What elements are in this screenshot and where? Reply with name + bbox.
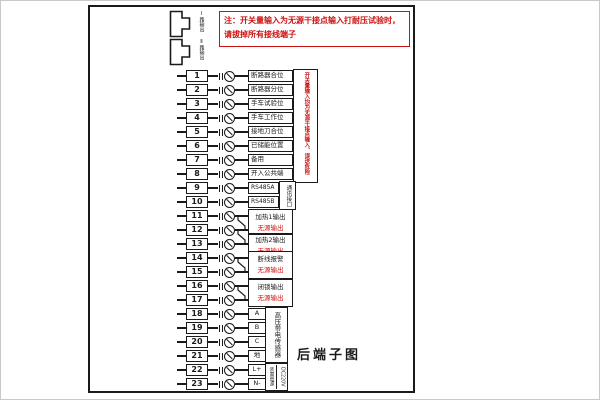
terminal-label-box: A <box>248 308 266 320</box>
plug-tick <box>219 213 221 220</box>
plug-tick <box>222 171 224 178</box>
hv-sensor-label: 高压带电传感器 <box>273 312 280 358</box>
screw-slot <box>226 129 233 136</box>
wire-segment <box>208 257 218 258</box>
plug-tick <box>222 101 224 108</box>
output-group-box: 闭锁输出无源输出 <box>248 279 293 307</box>
device-power-voltage: DC220V <box>279 367 284 386</box>
screw-terminal-icon <box>224 365 235 376</box>
plug-tick <box>219 255 221 262</box>
wire-segment <box>208 131 218 132</box>
plug-tick <box>219 185 221 192</box>
plug-tick <box>222 381 224 388</box>
terminal-number-box: 20 <box>186 336 208 348</box>
device-power-voltage-col: DC220V <box>276 365 287 389</box>
screw-terminal-icon <box>224 169 235 180</box>
wire-segment <box>208 145 218 146</box>
plug-tick <box>219 129 221 136</box>
wire-segment <box>177 369 186 370</box>
rear-terminal-diagram: Ⅰ路输出 Ⅱ路输出 注：开关量输入为无源干接点输入打耐压试验时， 请拔掉所有接线… <box>0 0 600 400</box>
plug-tick <box>219 241 221 248</box>
terminal-number-box: 9 <box>186 182 208 194</box>
wire-segment <box>208 229 218 230</box>
screw-terminal-icon <box>224 141 235 152</box>
screw-terminal-icon <box>224 99 235 110</box>
wire-segment <box>177 285 186 286</box>
terminal-number-box: 16 <box>186 280 208 292</box>
side-warning-box: 开关量输入均为无源干接点输入、误送危险 <box>293 69 318 183</box>
terminal-number-box: 17 <box>186 294 208 306</box>
wire-segment <box>177 89 186 90</box>
screw-terminal-icon <box>224 197 235 208</box>
terminal-number-box: 5 <box>186 126 208 138</box>
screw-slot <box>226 339 233 346</box>
wire-segment <box>208 89 218 90</box>
plug-tick <box>222 129 224 136</box>
terminal-label-box: RS485A <box>248 182 279 194</box>
wire-segment <box>177 299 186 300</box>
wire-segment <box>208 355 218 356</box>
comm-port-bracket: 通讯接口 <box>279 181 296 210</box>
plug-tick <box>222 115 224 122</box>
output-group-type: 无源输出 <box>249 293 292 303</box>
screw-slot <box>226 171 233 178</box>
terminal-number-box: 8 <box>186 168 208 180</box>
diagram-title: 后端子图 <box>297 344 361 363</box>
terminal-number-box: 10 <box>186 196 208 208</box>
wire-segment <box>208 383 218 384</box>
wire-segment <box>208 75 218 76</box>
plug-tick <box>219 283 221 290</box>
output-group-name: 加热2输出 <box>249 235 292 246</box>
plug-tick <box>219 101 221 108</box>
screw-slot <box>226 297 233 304</box>
terminal-number-box: 23 <box>186 378 208 390</box>
screw-slot <box>226 227 233 234</box>
plug-tick <box>222 283 224 290</box>
screw-slot <box>226 199 233 206</box>
wire-segment <box>208 117 218 118</box>
screw-slot <box>226 143 233 150</box>
wire-segment <box>208 159 218 160</box>
plug-tick <box>222 311 224 318</box>
contact-symbol <box>238 216 245 230</box>
side-warning-text: 开关量输入均为无源干接点输入、误送危险 <box>303 72 309 180</box>
wire-segment <box>208 187 218 188</box>
contact-symbol <box>238 258 245 272</box>
comm-port-label: 通讯接口 <box>285 185 291 207</box>
plug-tick <box>219 381 221 388</box>
device-power-label: 装置电源 <box>268 367 273 386</box>
screw-slot <box>226 157 233 164</box>
terminal-label-box: RS485B <box>248 196 279 208</box>
terminal-number-box: 12 <box>186 224 208 236</box>
screw-slot <box>226 255 233 262</box>
terminal-label-box: B <box>248 322 266 334</box>
plug-tick <box>222 73 224 80</box>
terminal-label-box: 手车试验位 <box>248 98 293 110</box>
screw-terminal-icon <box>224 337 235 348</box>
plug-tick <box>219 171 221 178</box>
wire-segment <box>177 341 186 342</box>
screw-slot <box>226 73 233 80</box>
screw-terminal-icon <box>224 309 235 320</box>
plug-tick <box>222 269 224 276</box>
wire-segment <box>177 257 186 258</box>
screw-slot <box>226 325 233 332</box>
plug-tick <box>219 227 221 234</box>
plug-tick <box>222 199 224 206</box>
plug-tick <box>219 297 221 304</box>
plug-tick <box>222 185 224 192</box>
screw-terminal-icon <box>224 113 235 124</box>
screw-slot <box>226 213 233 220</box>
wire-segment <box>208 173 218 174</box>
screw-slot <box>226 381 233 388</box>
device-power-bracket: 装置电源 DC220V <box>265 363 288 391</box>
wire-segment <box>177 383 186 384</box>
wire-segment <box>177 313 186 314</box>
relay-contact-symbols <box>236 1 250 400</box>
screw-slot <box>226 311 233 318</box>
terminal-label-box: 开入公共端 <box>248 168 293 180</box>
wire-segment <box>208 103 218 104</box>
wire-segment <box>177 159 186 160</box>
plug-tick <box>222 325 224 332</box>
output-group-name: 加热1输出 <box>249 212 292 223</box>
terminal-label-box: 地 <box>248 350 266 362</box>
screw-terminal-icon <box>224 267 235 278</box>
hv-sensor-bracket: 高压带电传感器 <box>265 307 288 363</box>
screw-terminal-icon <box>224 71 235 82</box>
plug-tick <box>222 353 224 360</box>
terminal-number-box: 19 <box>186 322 208 334</box>
wire-segment <box>177 131 186 132</box>
terminal-number-box: 1 <box>186 70 208 82</box>
screw-terminal-icon <box>224 225 235 236</box>
terminal-number-box: 6 <box>186 140 208 152</box>
screw-terminal-icon <box>224 253 235 264</box>
wire-segment <box>177 201 186 202</box>
terminal-label-box: 备用 <box>248 154 293 166</box>
screw-terminal-icon <box>224 351 235 362</box>
screw-slot <box>226 367 233 374</box>
plug-tick <box>219 325 221 332</box>
output-group-name: 断线报警 <box>249 254 292 265</box>
wire-segment <box>177 173 186 174</box>
wire-segment <box>177 145 186 146</box>
terminal-label-box: 断路器分位 <box>248 84 293 96</box>
screw-terminal-icon <box>224 323 235 334</box>
wire-segment <box>177 327 186 328</box>
device-power-name-col: 装置电源 <box>266 365 276 389</box>
wire-segment <box>177 355 186 356</box>
plug-tick <box>222 87 224 94</box>
screw-slot <box>226 241 233 248</box>
screw-terminal-icon <box>224 379 235 390</box>
screw-slot <box>226 353 233 360</box>
plug-tick <box>222 255 224 262</box>
terminal-label-box: 手车工作位 <box>248 112 293 124</box>
terminal-number-box: 21 <box>186 350 208 362</box>
screw-terminal-icon <box>224 85 235 96</box>
terminal-number-box: 3 <box>186 98 208 110</box>
terminal-number-box: 2 <box>186 84 208 96</box>
terminal-number-box: 14 <box>186 252 208 264</box>
output-group-name: 闭锁输出 <box>249 282 292 293</box>
wire-segment <box>177 117 186 118</box>
terminal-label-box: L+ <box>248 364 266 376</box>
output-group-box: 加热1输出无源输出 <box>248 209 293 234</box>
terminal-number-box: 7 <box>186 154 208 166</box>
wire-segment <box>177 103 186 104</box>
terminal-label-box: N- <box>248 378 266 390</box>
wire-segment <box>208 327 218 328</box>
contact-symbol <box>238 286 245 300</box>
screw-slot <box>226 87 233 94</box>
terminal-label-box: 已储能位置 <box>248 140 293 152</box>
screw-terminal-icon <box>224 127 235 138</box>
plug-tick <box>222 367 224 374</box>
wire-segment <box>177 187 186 188</box>
wire-segment <box>208 201 218 202</box>
wire-segment <box>208 341 218 342</box>
terminal-label-box: 断路器合位 <box>248 70 293 82</box>
plug-tick <box>222 213 224 220</box>
terminal-number-box: 15 <box>186 266 208 278</box>
screw-terminal-icon <box>224 211 235 222</box>
screw-terminal-icon <box>224 155 235 166</box>
plug-tick <box>219 367 221 374</box>
plug-tick <box>222 241 224 248</box>
wire-segment <box>208 369 218 370</box>
screw-slot <box>226 101 233 108</box>
plug-tick <box>219 87 221 94</box>
screw-terminal-icon <box>224 281 235 292</box>
terminal-number-box: 13 <box>186 238 208 250</box>
terminal-label-box: C <box>248 336 266 348</box>
terminal-number-box: 22 <box>186 364 208 376</box>
plug-tick <box>219 143 221 150</box>
output-group-box: 断线报警无源输出 <box>248 251 293 279</box>
screw-terminal-icon <box>224 295 235 306</box>
plug-tick <box>219 199 221 206</box>
plug-tick <box>222 339 224 346</box>
output-group-type: 无源输出 <box>249 223 292 233</box>
plug-tick <box>222 157 224 164</box>
plug-tick <box>219 157 221 164</box>
screw-slot <box>226 269 233 276</box>
contact-symbol <box>238 230 245 244</box>
screw-terminal-icon <box>224 183 235 194</box>
terminal-strip: 1断路器合位2断路器分位3手车试验位4手车工作位5接地刀合位6已储能位置7备用8… <box>1 1 600 400</box>
wire-segment <box>208 215 218 216</box>
wire-segment <box>177 271 186 272</box>
wire-segment <box>177 75 186 76</box>
wire-segment <box>177 229 186 230</box>
plug-tick <box>219 269 221 276</box>
plug-tick <box>222 297 224 304</box>
screw-slot <box>226 185 233 192</box>
output-group-type: 无源输出 <box>249 265 292 275</box>
terminal-label-box: 接地刀合位 <box>248 126 293 138</box>
terminal-number-box: 4 <box>186 112 208 124</box>
plug-tick <box>222 143 224 150</box>
wire-segment <box>208 313 218 314</box>
plug-tick <box>222 227 224 234</box>
wire-segment <box>208 285 218 286</box>
plug-tick <box>219 73 221 80</box>
wire-segment <box>208 243 218 244</box>
terminal-number-box: 18 <box>186 308 208 320</box>
plug-tick <box>219 353 221 360</box>
screw-slot <box>226 283 233 290</box>
screw-terminal-icon <box>224 239 235 250</box>
wire-segment <box>177 243 186 244</box>
plug-tick <box>219 339 221 346</box>
wire-segment <box>208 271 218 272</box>
screw-slot <box>226 115 233 122</box>
terminal-number-box: 11 <box>186 210 208 222</box>
wire-segment <box>208 299 218 300</box>
plug-tick <box>219 115 221 122</box>
plug-tick <box>219 311 221 318</box>
wire-segment <box>177 215 186 216</box>
